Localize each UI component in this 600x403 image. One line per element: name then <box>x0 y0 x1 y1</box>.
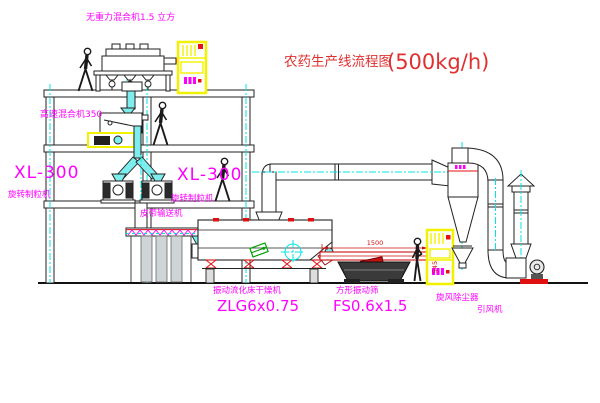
dryer-leg <box>310 269 318 283</box>
label-granulator-left-model: XL-300 <box>14 163 79 183</box>
cyclone-inlet-adapter <box>432 160 450 186</box>
motor <box>94 136 110 145</box>
fan-base <box>520 279 548 284</box>
red-indicator <box>198 79 202 83</box>
down-pipe <box>127 91 135 109</box>
red-indicator <box>446 235 451 240</box>
exhaust-pipe-and-fan <box>468 148 548 284</box>
worker-roof <box>79 48 93 91</box>
gravity-free-mixer <box>94 44 180 112</box>
cabinet-display-marks <box>184 77 196 84</box>
label-high-speed-mixer: 高速混合机350 <box>40 108 102 120</box>
granulator-left <box>101 174 135 203</box>
conveyor-support <box>171 236 182 282</box>
fan-housing <box>506 258 526 278</box>
label-dryer-name: 振动流化床干燥机 <box>213 285 282 296</box>
label-belt-conveyor: 皮带输送机 <box>140 208 183 219</box>
control-cabinet-top <box>178 42 206 93</box>
floor2-slab <box>44 145 254 152</box>
dim-text-545: 545 <box>431 261 439 273</box>
cyclone-marks <box>455 165 466 169</box>
motor-pedestal <box>531 274 543 279</box>
label-granulator-right-model: XL-300 <box>177 165 242 185</box>
label-dryer-model: ZLG6x0.75 <box>217 297 299 315</box>
induced-draft-fan <box>506 258 548 284</box>
conveyor-support <box>156 236 167 282</box>
screen-base <box>338 262 410 281</box>
conveyor-support <box>141 236 152 282</box>
label-granulator-right-name: 旋转制粒机 <box>171 193 214 204</box>
fan-motor <box>530 260 544 274</box>
dryer-leg <box>206 269 214 283</box>
spring-mount <box>312 260 322 268</box>
dim-text-1500: 1500 <box>367 239 384 247</box>
control-cabinet-bottom <box>427 230 453 284</box>
spring-mount <box>206 260 216 268</box>
red-indicator <box>446 270 450 274</box>
label-cyclone: 旋风除尘器 <box>436 292 479 303</box>
label-screen-model: FS0.6x1.5 <box>333 297 407 315</box>
flowsheet-drawing: 农药生产线流程图 (500kg/h) 无重力混合机1.5 立方 高速混合机350… <box>0 0 600 403</box>
exhaust-stack <box>508 170 534 262</box>
label-granulator-left-name: 旋转制粒机 <box>8 189 51 200</box>
label-fan: 引风机 <box>477 304 503 315</box>
pulley <box>114 136 122 144</box>
worker-floor2 <box>154 102 168 145</box>
cad-flowsheet-page: 农药生产线流程图 (500kg/h) 无重力混合机1.5 立方 高速混合机350… <box>0 0 600 403</box>
fluid-bed-dryer <box>192 218 337 283</box>
discharge-pipe <box>134 126 141 158</box>
title-capacity: (500kg/h) <box>387 50 489 74</box>
label-gravity-mixer: 无重力混合机1.5 立方 <box>86 11 175 23</box>
red-indicator <box>198 44 203 49</box>
spring-mount <box>282 260 292 268</box>
exhaust-duct <box>252 160 450 222</box>
label-screen-name: 方形振动筛 <box>336 285 379 296</box>
down-pipe <box>488 180 503 252</box>
title-text: 农药生产线流程图 <box>284 54 392 70</box>
roof-slab <box>44 90 254 97</box>
